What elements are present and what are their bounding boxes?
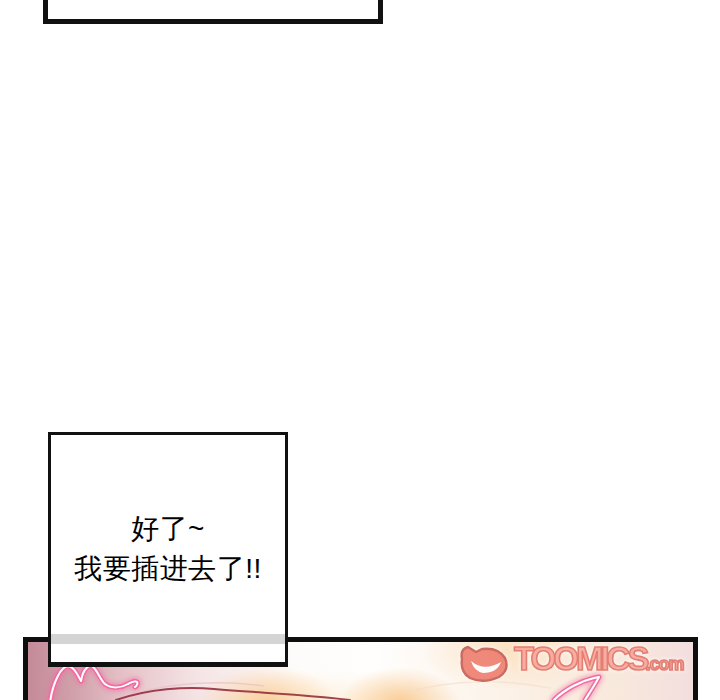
neon-squiggle-left [50, 666, 137, 700]
watermark-text: TOOMICS.com [514, 642, 683, 675]
speech-line-2: 我要插进去了!! [74, 549, 262, 589]
panel-border-showthrough [51, 634, 285, 644]
webtoon-page: 好了~ 我要插进去了!! TOOMICS.com [0, 0, 720, 700]
neon-swoosh-right [554, 677, 599, 700]
speech-bubble: 好了~ 我要插进去了!! [48, 432, 288, 667]
speech-text: 好了~ 我要插进去了!! [74, 509, 262, 589]
watermark-suffix-text: .com [645, 654, 683, 674]
watermark-brand-text: TOOMICS [514, 640, 646, 677]
speech-bubble-top-cropped [43, 0, 383, 24]
speech-line-1: 好了~ [74, 509, 262, 549]
contour-arc-lines [116, 682, 550, 700]
toomics-mascot-icon [458, 645, 512, 683]
